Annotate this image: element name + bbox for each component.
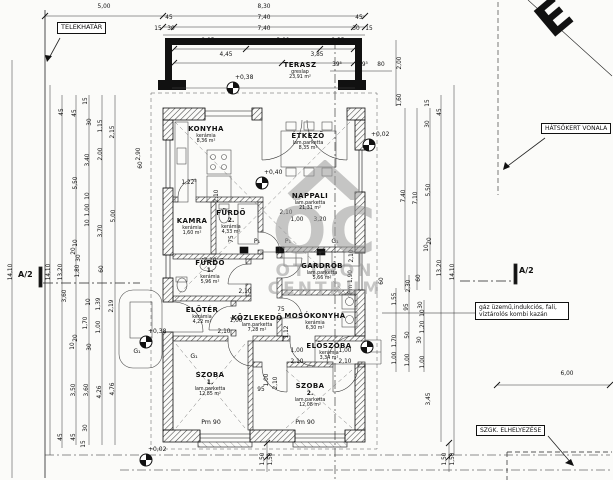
dimension-label: 50 bbox=[406, 331, 412, 338]
dimension-label: 1,00 bbox=[406, 354, 412, 367]
plan-text: G₁ bbox=[133, 349, 140, 355]
dimension-label: 10 bbox=[71, 342, 77, 349]
dimension-label: 1,70 bbox=[84, 317, 90, 330]
dimension-label: 13,20 bbox=[438, 260, 444, 277]
dimension-label: 6,00 bbox=[561, 372, 574, 378]
dimension-label: 39⁵ bbox=[332, 63, 342, 69]
room-label-nm: TERASZ bbox=[284, 62, 317, 70]
room-label: TERASZgreslap23,91 m² bbox=[284, 62, 317, 81]
roof-projection-lines bbox=[151, 93, 377, 449]
dimension-label: 2,10 bbox=[350, 250, 356, 263]
gas-boiler-note-line2: víztárolós kombi kazán bbox=[479, 311, 565, 318]
dimension-label: 60 bbox=[417, 274, 423, 281]
dimension-label: 13,20 bbox=[59, 264, 65, 281]
dimension-label: 1,00 bbox=[291, 349, 304, 355]
dimension-label: 1,00 bbox=[97, 321, 103, 334]
room-label-nm: ÉTKEZŐ bbox=[291, 133, 324, 141]
dimension-label: 1,39 bbox=[97, 298, 103, 311]
dimension-label: 2,10 bbox=[239, 290, 252, 296]
dimension-label: 5,00 bbox=[98, 5, 111, 11]
dimension-label: 1,50 bbox=[451, 453, 457, 466]
dimension-label: 2,10 bbox=[218, 330, 231, 336]
dimension-label: 4,26 bbox=[98, 386, 104, 399]
dimension-label: 20 bbox=[74, 334, 80, 341]
room-label-ar: 3,34 m² bbox=[306, 356, 351, 361]
dimension-label: 2,00 bbox=[398, 57, 404, 70]
level-value: +0,40 bbox=[264, 169, 282, 176]
dimension-label: 1,55 bbox=[393, 293, 399, 306]
dimension-label: 10 bbox=[86, 219, 92, 226]
dimension-label: 3,50 bbox=[72, 384, 78, 397]
floor-plan-sheet: OC OTTHON CENTRUM TELEKHATÁR HÁTSÓKERT V… bbox=[0, 0, 613, 480]
room-label-nm: KONYHA bbox=[188, 126, 224, 134]
dimension-label: 2,90 bbox=[137, 148, 143, 161]
dimension-label: 1,00 bbox=[393, 352, 399, 365]
room-label-nm: ELŐSZOBA bbox=[306, 343, 351, 351]
room-label-ar: 5,96 m² bbox=[195, 280, 225, 285]
level-benchmark-icon bbox=[361, 341, 374, 354]
room-label-sb: 2. bbox=[216, 218, 246, 225]
dimension-label: 95 bbox=[405, 303, 411, 310]
level-value: +0,02 bbox=[148, 446, 166, 453]
level-benchmark-icon bbox=[363, 139, 376, 152]
dimension-label: 7,40 bbox=[258, 27, 271, 33]
room-label-nm: MOSÓKONYHA bbox=[284, 313, 345, 321]
dimension-label: 45 bbox=[60, 108, 66, 115]
plan-text: G₁ bbox=[190, 354, 197, 360]
dimension-label: 2,10 bbox=[274, 377, 280, 390]
plan-text: P₁ bbox=[285, 239, 291, 245]
dimension-label: 2,35 bbox=[332, 39, 345, 45]
dimension-label: 3,85 bbox=[311, 53, 324, 59]
gas-boiler-note: gáz üzemű,indukciós, fali, víztárolós ko… bbox=[475, 302, 569, 320]
dimension-label: 30 bbox=[426, 120, 432, 127]
dimension-label: 1,00 bbox=[265, 374, 271, 387]
dimension-label: 14,10 bbox=[47, 264, 53, 281]
level-benchmark-icon bbox=[256, 177, 269, 190]
room-label-nm: KAMRA bbox=[177, 218, 208, 226]
dimension-label: 3,45 bbox=[427, 393, 433, 406]
room-label-ar: 5,66 m² bbox=[301, 276, 343, 281]
room-label: NAPPALIlam.parketta21,31 m² bbox=[292, 193, 328, 212]
dimension-label: 2,15 bbox=[111, 126, 117, 139]
dimension-label: 10 bbox=[87, 298, 93, 305]
room-label-nm: KÖZLEKEDŐ bbox=[232, 315, 283, 323]
dimension-label: 3,40 bbox=[86, 154, 92, 167]
dimension-label: 7,10 bbox=[414, 192, 420, 205]
dimension-label: 7,40 bbox=[402, 190, 408, 203]
dimension-label: 1,22⁵ bbox=[181, 181, 196, 187]
dimension-label: 14,10 bbox=[9, 264, 15, 281]
dimension-label: 95 bbox=[257, 388, 264, 394]
dimension-label: 10 bbox=[74, 239, 80, 246]
car-placement-label: SZGK. ELHELYEZÉSE bbox=[476, 425, 545, 436]
dimension-label: 1,00 bbox=[86, 204, 92, 217]
room-label-ar: 8,35 m² bbox=[291, 146, 324, 151]
level-value: +0,38 bbox=[148, 328, 166, 335]
room-label: KONYHAkerámia8,36 m² bbox=[188, 126, 224, 145]
room-label-ar: 23,91 m² bbox=[284, 75, 317, 80]
dimension-label: 80 bbox=[377, 63, 384, 69]
dimension-label: 60 bbox=[139, 161, 145, 168]
dimension-label: 3,60 bbox=[85, 384, 91, 397]
level-benchmark-icon bbox=[140, 454, 153, 467]
room-label: SZOBA2.lam.parketta12,08 m² bbox=[295, 383, 326, 408]
dimension-label: 1,50 bbox=[443, 453, 449, 466]
dimension-label: 3,70 bbox=[99, 225, 105, 238]
dimension-label: 3,60 bbox=[63, 290, 69, 303]
room-label: KAMRAkerámia1,60 m² bbox=[177, 218, 208, 237]
gas-boiler-note-line1: gáz üzemű,indukciós, fali, bbox=[479, 304, 565, 311]
dimension-label: 60 bbox=[380, 277, 386, 284]
dimension-label: 2,95 bbox=[202, 39, 215, 45]
dimension-label: 15 bbox=[84, 97, 90, 104]
dimension-label: 30 bbox=[418, 336, 424, 343]
level-value: +0,38 bbox=[235, 74, 253, 81]
room-label-nm: GARDRÓB bbox=[301, 263, 343, 271]
room-label-ar: 12,85 m² bbox=[195, 392, 226, 397]
dimension-label: 30 bbox=[77, 254, 83, 261]
level-value: +0,02 bbox=[371, 131, 389, 138]
dimension-label: 2,10 bbox=[215, 190, 221, 203]
level-benchmark-icon bbox=[227, 82, 240, 95]
dimension-label: 10 bbox=[425, 244, 431, 251]
room-label-ar: 12,08 m² bbox=[295, 403, 326, 408]
dimension-label: 2,19 bbox=[110, 300, 116, 313]
dimension-label: 8,30 bbox=[258, 5, 271, 11]
dimension-label: 1,00 bbox=[291, 218, 304, 224]
dimension-label: 1,70 bbox=[393, 335, 399, 348]
dimension-label: 39⁵ bbox=[358, 63, 368, 69]
dimension-label: 15 bbox=[426, 99, 432, 106]
room-label: ELŐTÉRkerámia4,22 m² bbox=[186, 307, 219, 326]
dimension-label: 14,10 bbox=[451, 264, 457, 281]
dimension-label: 45 bbox=[165, 16, 172, 22]
room-label: ELŐSZOBAkerámia3,34 m² bbox=[306, 343, 351, 362]
dimension-label: 4,76 bbox=[111, 383, 117, 396]
room-label: KÖZLEKEDŐlam.parketta7,28 m² bbox=[232, 315, 283, 334]
dimension-label: 1,50 bbox=[261, 453, 267, 466]
room-label-ar: 4,22 m² bbox=[186, 320, 219, 325]
plan-text: G₁ bbox=[331, 239, 338, 245]
room-label-ar: 8,36 m² bbox=[188, 139, 224, 144]
room-label-sb: 1. bbox=[195, 268, 225, 275]
room-label: ÉTKEZŐlam.parketta8,35 m² bbox=[291, 133, 324, 152]
dimension-label: 30 bbox=[167, 27, 174, 33]
dimension-label: 1,80 bbox=[76, 265, 82, 278]
plan-text: Pm 90 bbox=[201, 420, 221, 426]
dimension-label: 45 bbox=[73, 109, 79, 116]
room-label-ar: 1,60 m² bbox=[177, 231, 208, 236]
dimension-label: 1,50 bbox=[269, 453, 275, 466]
dimension-label: 45 bbox=[59, 433, 65, 440]
dimension-label: 1,15 bbox=[99, 120, 105, 133]
room-label-sb: 1. bbox=[195, 380, 226, 387]
plot-boundary-label: TELEKHATÁR bbox=[57, 22, 106, 34]
room-label-nm: NAPPALI bbox=[292, 193, 328, 201]
dimension-label: 1,00 bbox=[421, 356, 427, 369]
dimension-label: 15 bbox=[365, 27, 372, 33]
dimension-label: 30 bbox=[88, 118, 94, 125]
dimension-label: 30 bbox=[84, 424, 90, 431]
dimension-label: 3,20 bbox=[314, 218, 327, 224]
dimension-label: 2,30 bbox=[407, 280, 413, 293]
dimension-label: 75 bbox=[230, 235, 236, 242]
plan-text: P₁ bbox=[254, 239, 260, 245]
room-label: GARDRÓBlam.parketta5,66 m² bbox=[301, 263, 343, 282]
room-label-ar: 7,28 m² bbox=[232, 328, 283, 333]
dimension-label: 5,50 bbox=[427, 184, 433, 197]
room-label: FÜRDŐ2.kerámia4,33 m² bbox=[216, 210, 246, 235]
dimension-label: 15 bbox=[154, 27, 161, 33]
room-label-sb: 2. bbox=[295, 391, 326, 398]
room-label-ar: 21,31 m² bbox=[292, 206, 328, 211]
room-label-ar: 4,33 m² bbox=[216, 230, 246, 235]
dimension-label: 2,10 bbox=[280, 211, 293, 217]
dimension-label: Pm 1,90 bbox=[349, 270, 355, 294]
dimension-label: 30 bbox=[88, 343, 94, 350]
dimension-label: 5,00 bbox=[112, 210, 118, 223]
level-benchmark-icon bbox=[140, 336, 153, 349]
dim-ticks bbox=[42, 13, 613, 460]
dimension-label: 3,00 bbox=[277, 39, 290, 45]
dimension-label: 30 bbox=[352, 27, 359, 33]
dimension-label: 7,40 bbox=[258, 16, 271, 22]
dimension-label: 45 bbox=[438, 108, 444, 115]
room-label: SZOBA1.lam.parketta12,85 m² bbox=[195, 372, 226, 397]
dimension-label: 30 bbox=[419, 301, 425, 308]
site-lines bbox=[39, 0, 613, 480]
dimension-label: 2,10 bbox=[291, 360, 304, 366]
room-label: FÜRDŐ1.kerámia5,96 m² bbox=[195, 260, 225, 285]
room-label-ar: 6,30 m² bbox=[284, 326, 345, 331]
dimension-label: 10 bbox=[421, 309, 427, 316]
plan-text: Pm 90 bbox=[295, 420, 315, 426]
dimension-label: 45 bbox=[355, 16, 362, 22]
dimension-label: 15 bbox=[82, 440, 88, 447]
backyard-line-label: HÁTSÓKERT VONALA bbox=[541, 123, 611, 134]
dimension-label: 1,60 bbox=[398, 94, 404, 107]
section-marker-left: A/2 bbox=[18, 270, 33, 279]
dimension-label: 4,45 bbox=[220, 53, 233, 59]
dimension-label: 5,50 bbox=[74, 177, 80, 190]
dimension-label: 60 bbox=[100, 265, 106, 272]
dimension-label: 2,00 bbox=[99, 148, 105, 161]
dimension-label: 45 bbox=[72, 433, 78, 440]
dimension-label: 10 bbox=[86, 192, 92, 199]
room-label: MOSÓKONYHAkerámia6,30 m² bbox=[284, 313, 345, 332]
section-marker-right: A/2 bbox=[519, 266, 534, 275]
dimension-label: 1,20 bbox=[421, 321, 427, 334]
room-label-nm: ELŐTÉR bbox=[186, 307, 219, 315]
